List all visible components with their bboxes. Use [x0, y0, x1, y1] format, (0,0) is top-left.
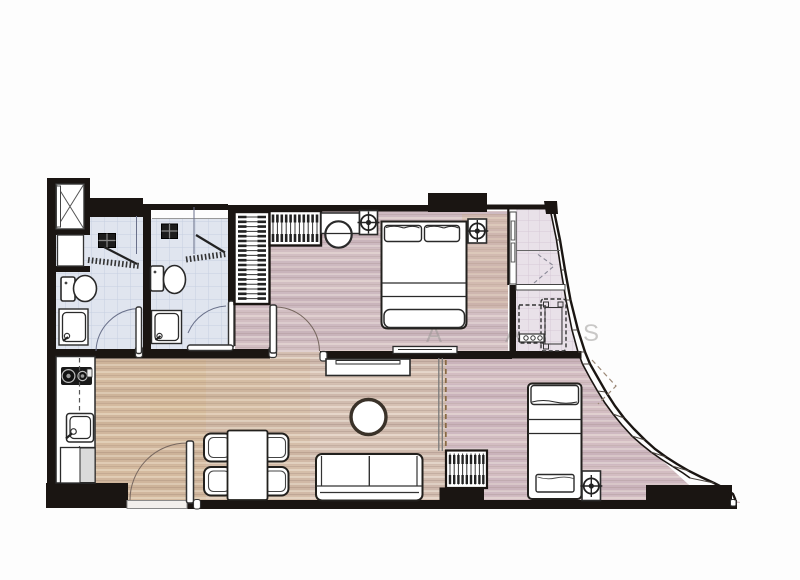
- svg-text:S: S: [583, 320, 599, 347]
